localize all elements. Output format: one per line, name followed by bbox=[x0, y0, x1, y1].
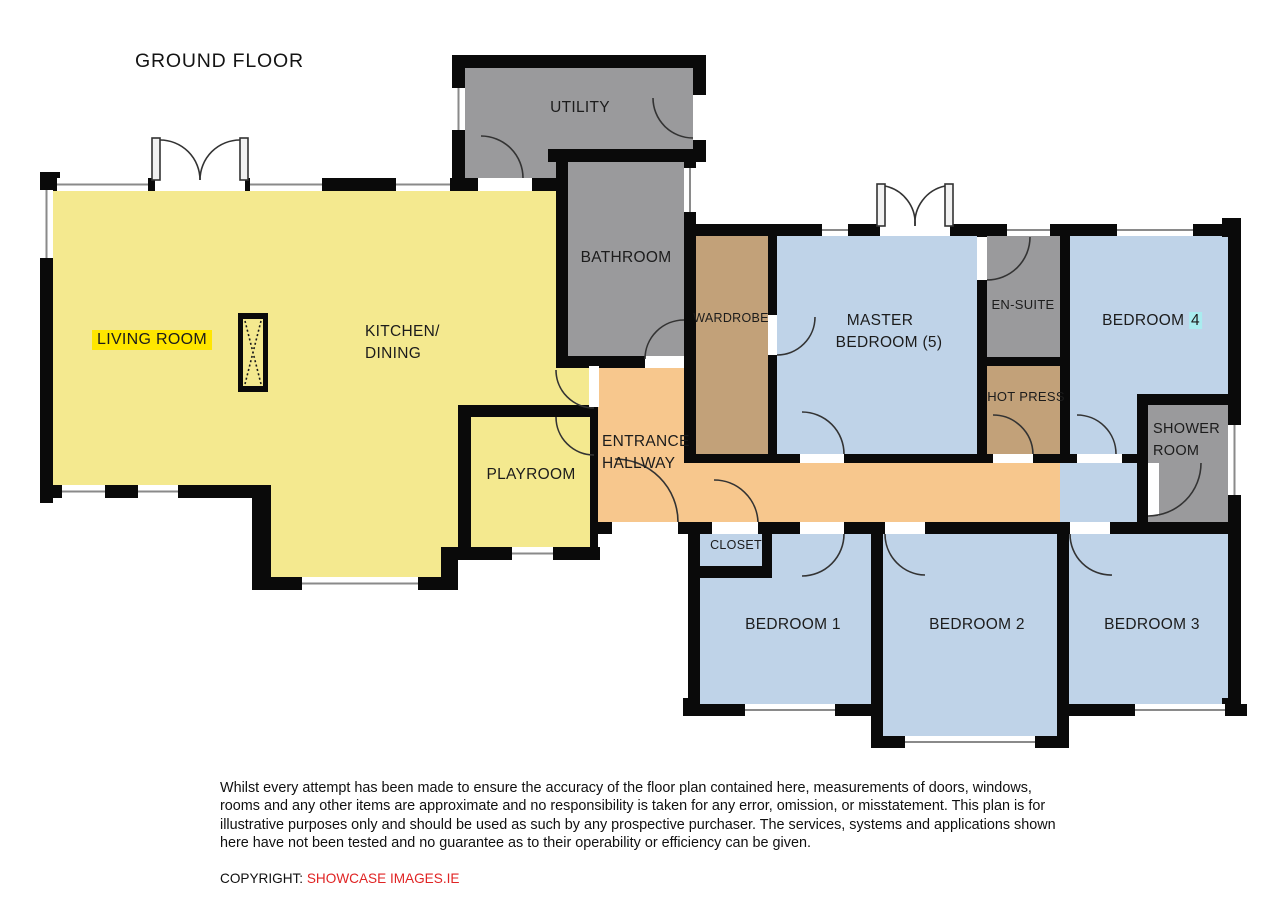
room-label-ensuite: EN-SUITE bbox=[991, 297, 1054, 312]
room-label-bedroom1: BEDROOM 1 bbox=[745, 616, 841, 634]
room-hotpress-area bbox=[977, 357, 1070, 463]
floorplan-drawing bbox=[0, 0, 1280, 904]
room-label-master-line1: MASTER bbox=[847, 312, 913, 330]
room-label-playroom: PLAYROOM bbox=[486, 466, 575, 484]
room-label-shower-line1: SHOWER bbox=[1153, 421, 1220, 437]
disclaimer-line-4: here have not been tested and no guarant… bbox=[220, 834, 1056, 852]
disclaimer-text: Whilst every attempt has been made to en… bbox=[220, 779, 1056, 853]
room-label-bedroom2: BEDROOM 2 bbox=[929, 616, 1025, 634]
disclaimer-line-3: illustrative purposes only and should be… bbox=[220, 816, 1056, 834]
room-label-hallway-line1: ENTRANCE bbox=[602, 433, 690, 451]
fireplace bbox=[238, 313, 268, 392]
bedroom4-prefix: BEDROOM bbox=[1102, 312, 1189, 329]
room-label-utility: UTILITY bbox=[550, 99, 610, 117]
room-label-bedroom3: BEDROOM 3 bbox=[1104, 616, 1200, 634]
room-label-living-room: LIVING ROOM bbox=[92, 331, 212, 349]
room-living-kitchen-area bbox=[46, 184, 598, 590]
room-bedroom2-area bbox=[877, 522, 1065, 748]
room-label-bathroom: BATHROOM bbox=[581, 249, 672, 267]
room-wardrobe-area bbox=[692, 228, 777, 463]
plan-title: GROUND FLOOR bbox=[135, 50, 304, 73]
disclaimer-line-2: rooms and any other items are approximat… bbox=[220, 797, 1056, 815]
room-label-master-line2: BEDROOM (5) bbox=[836, 334, 943, 352]
room-label-kitchen-line1: KITCHEN/ bbox=[365, 323, 440, 341]
room-label-shower-line2: ROOM bbox=[1153, 443, 1199, 459]
room-label-wardrobe: WARDROBE bbox=[693, 311, 769, 325]
bedroom4-number-highlight: 4 bbox=[1189, 312, 1202, 329]
copyright-company: SHOWCASE IMAGES.IE bbox=[307, 871, 460, 886]
floorplan-page: GROUND FLOOR UTILITY BATHROOM LIVING ROO… bbox=[0, 0, 1280, 904]
copyright-line: COPYRIGHT: SHOWCASE IMAGES.IE bbox=[220, 871, 459, 886]
disclaimer-line-1: Whilst every attempt has been made to en… bbox=[220, 779, 1056, 797]
room-label-closet: CLOSET bbox=[710, 538, 762, 552]
room-label-kitchen-line2: DINING bbox=[365, 345, 421, 363]
room-label-bedroom4: BEDROOM 4 bbox=[1102, 312, 1202, 330]
room-label-hallway-line2: HALLWAY bbox=[602, 455, 675, 473]
room-label-hotpress: HOT PRESS bbox=[987, 389, 1065, 404]
copyright-prefix: COPYRIGHT: bbox=[220, 871, 307, 886]
living-room-highlight: LIVING ROOM bbox=[92, 330, 212, 350]
